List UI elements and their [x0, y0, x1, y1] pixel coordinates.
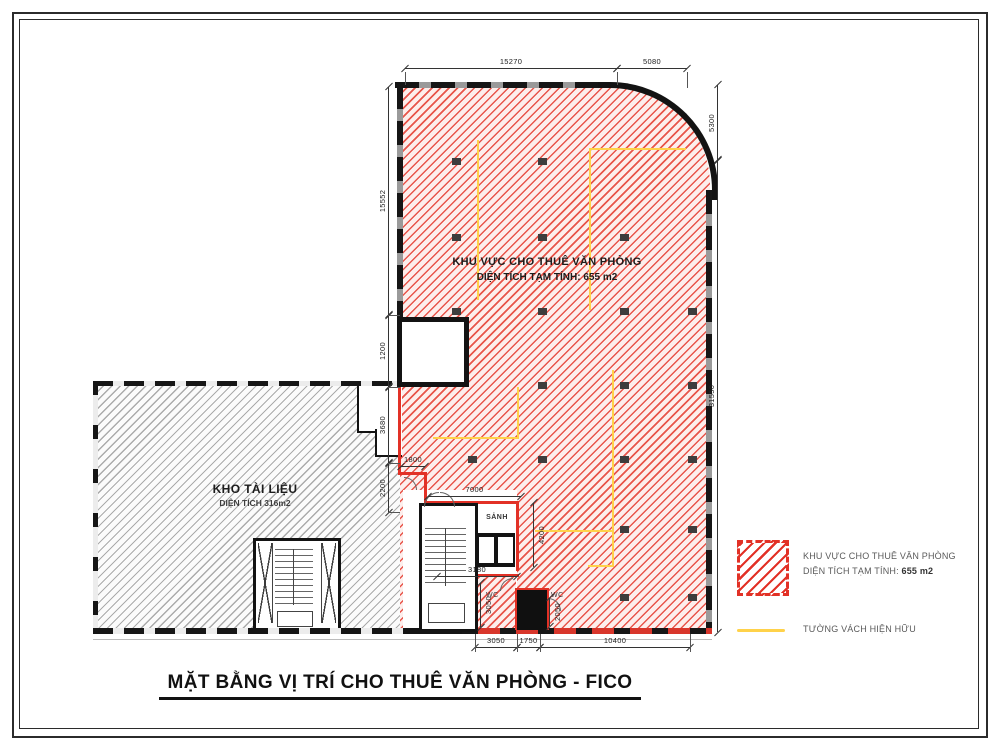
storage-zone-label: KHO TÀI LIỆU DIỆN TÍCH 316m2 — [165, 482, 345, 508]
legend-office-area-label: DIỆN TÍCH TẠM TÍNH: — [803, 566, 899, 576]
dim-left-2: 1200 — [388, 315, 389, 387]
dim-right-2: 31550 — [717, 160, 718, 632]
lease-boundary — [398, 472, 427, 475]
floor-plan-drawing: KHU VỰC CHO THUÊ VĂN PHÒNG DIỆN TÍCH TẠM… — [0, 0, 1000, 750]
column-marker — [688, 308, 697, 315]
column-marker — [452, 158, 461, 165]
column-marker — [620, 382, 629, 389]
stair-rail — [293, 549, 294, 605]
dim-step: 1800 — [401, 466, 425, 467]
existing-wall-line — [612, 370, 614, 566]
dim-wc-left: 3050 — [480, 583, 481, 627]
stair-side-brace — [321, 543, 336, 623]
extension-line — [690, 634, 691, 652]
wall-right — [706, 190, 712, 632]
stair-treads — [275, 549, 313, 605]
legend-wall-label: TƯỜNG VÁCH HIỆN HỮU — [803, 624, 916, 634]
storage-zone-name: KHO TÀI LIỆU — [165, 482, 345, 496]
column-marker — [538, 382, 547, 389]
column-marker — [452, 234, 461, 241]
dim-core-width: 3180 — [437, 576, 517, 577]
column-marker — [688, 456, 697, 463]
existing-wall-line — [589, 148, 591, 310]
column-marker — [538, 234, 547, 241]
column-marker — [538, 308, 547, 315]
storage-zone — [95, 385, 400, 632]
existing-wall-line — [588, 565, 614, 567]
column-marker — [620, 234, 629, 241]
elevator-icon — [496, 533, 515, 567]
office-zone-label: KHU VỰC CHO THUÊ VĂN PHÒNG DIỆN TÍCH TẠM… — [427, 256, 667, 283]
dim-left-3: 3680 — [388, 387, 389, 463]
dim-core-height: 4200 — [533, 503, 534, 567]
column-marker — [620, 594, 629, 601]
wall-left-storage — [93, 381, 98, 632]
elevator-icon — [477, 533, 496, 567]
dim-left-4: 2200 — [388, 463, 389, 512]
dim-top-2: 5080 — [617, 68, 687, 69]
extension-line — [388, 512, 400, 513]
column-marker — [620, 526, 629, 533]
column-marker — [688, 526, 697, 533]
dim-bottom-2: 1750 — [517, 647, 540, 648]
column-marker — [688, 382, 697, 389]
existing-wall-line — [535, 530, 614, 532]
dim-right-1: 5300 — [717, 85, 718, 160]
lobby-label: SẢNH — [470, 514, 524, 521]
existing-wall-line — [517, 387, 519, 439]
extension-line — [517, 634, 518, 652]
stair-landing — [428, 603, 465, 623]
lease-boundary — [516, 501, 519, 571]
dim-lobby-width: 7000 — [428, 496, 521, 497]
extension-line — [388, 315, 400, 316]
extension-line — [617, 72, 618, 85]
office-zone-area: DIỆN TÍCH TẠM TÍNH: 655 m2 — [427, 272, 667, 283]
legend-office-swatch — [737, 540, 789, 596]
legend-office-line2: DIỆN TÍCH TẠM TÍNH: 655 m2 — [803, 566, 933, 576]
existing-wall-line — [433, 437, 518, 439]
wall-bottom-office — [462, 628, 712, 634]
column-marker — [538, 456, 547, 463]
dim-bottom-1: 3050 — [475, 647, 517, 648]
column-marker — [468, 456, 477, 463]
column-marker — [538, 158, 547, 165]
column-marker — [620, 456, 629, 463]
lease-boundary — [398, 387, 401, 475]
wall-top-storage — [93, 381, 402, 386]
wall-top — [395, 82, 610, 88]
extension-line — [540, 634, 541, 652]
legend-wall-swatch — [737, 629, 785, 632]
column-marker — [452, 308, 461, 315]
stair-rail — [445, 528, 446, 586]
dim-top-1: 15270 — [405, 68, 617, 69]
storage-zone-area: DIỆN TÍCH 316m2 — [165, 498, 345, 508]
legend-office-line1: KHU VỰC CHO THUÊ VĂN PHÒNG — [803, 551, 956, 561]
service-shaft — [515, 588, 549, 630]
extension-line — [475, 634, 476, 652]
wall-bottom-storage — [93, 628, 403, 634]
drawing-title-block: MẶT BẰNG VỊ TRÍ CHO THUÊ VĂN PHÒNG - FIC… — [95, 672, 705, 700]
extension-line — [388, 387, 400, 388]
extension-line — [388, 463, 400, 464]
legend-office-area-value: 655 m2 — [902, 566, 934, 576]
column-marker — [688, 594, 697, 601]
extension-line — [687, 72, 688, 88]
extension-line — [405, 72, 406, 85]
stair-landing — [277, 611, 313, 627]
dim-wc-right: 2050 — [549, 598, 550, 626]
staircase-storage — [253, 538, 341, 634]
column-marker — [620, 308, 629, 315]
wall-left-office — [397, 85, 403, 317]
dim-left-1: 15552 — [388, 87, 389, 315]
dim-bottom-3: 10400 — [540, 647, 690, 648]
office-zone-name: KHU VỰC CHO THUÊ VĂN PHÒNG — [427, 256, 667, 268]
stair-side-brace — [258, 543, 273, 623]
elevator-shaft-icon — [397, 317, 469, 387]
drawing-title: MẶT BẰNG VỊ TRÍ CHO THUÊ VĂN PHÒNG - FIC… — [159, 672, 640, 700]
